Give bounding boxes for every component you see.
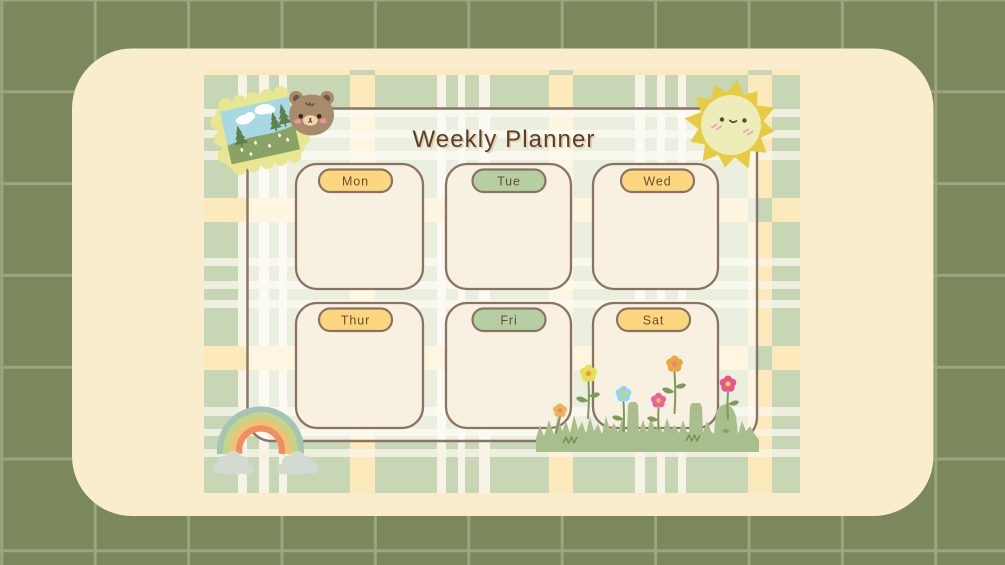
svg-text:Mon: Mon [342,175,369,189]
svg-text:Weekly Planner: Weekly Planner [412,126,595,153]
svg-text:Thur: Thur [341,314,370,328]
svg-text:Tue: Tue [497,175,521,189]
svg-text:Wed: Wed [643,175,671,189]
svg-text:Sat: Sat [643,314,664,328]
svg-text:Fri: Fri [500,314,517,328]
